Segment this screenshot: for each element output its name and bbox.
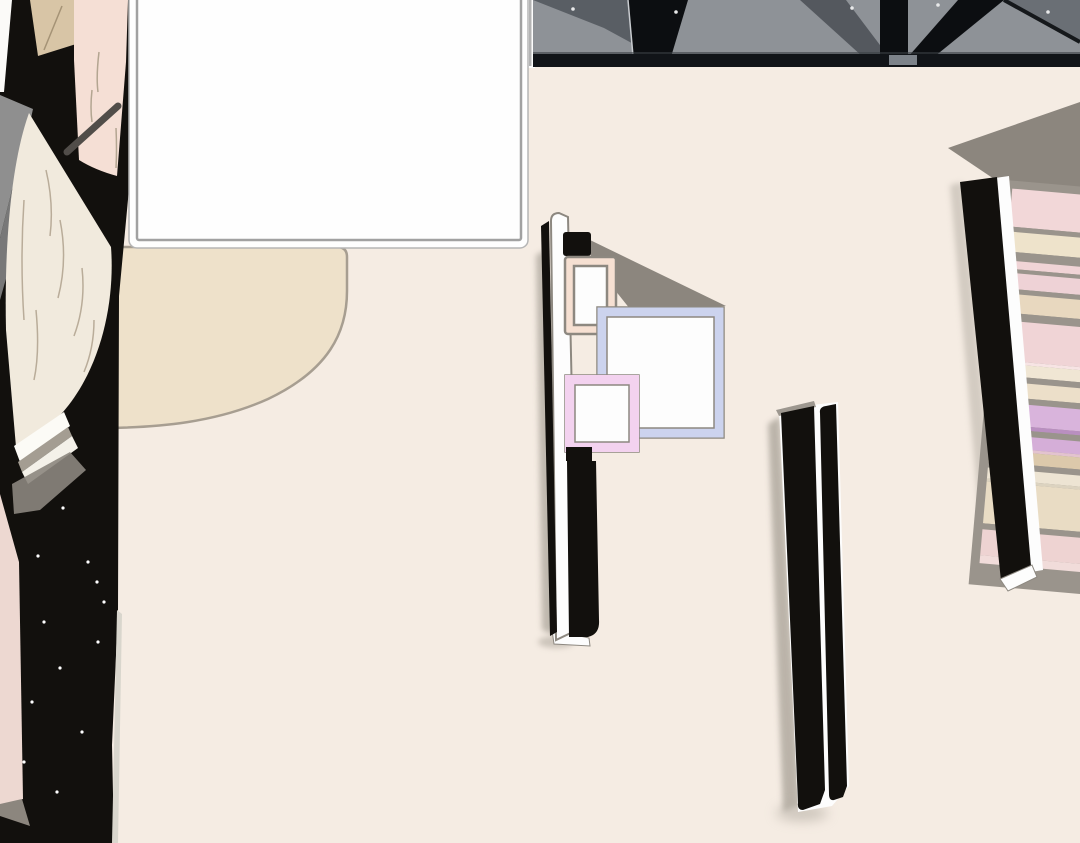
wall-black-block-bottom — [566, 447, 592, 461]
sparkle-dot — [102, 600, 105, 603]
sparkle-dot — [36, 554, 39, 557]
pink-frame-outer — [565, 375, 639, 452]
ceiling-band-gap — [889, 55, 917, 65]
ceiling-dot — [674, 10, 678, 14]
wall-black-block-top — [563, 232, 591, 256]
sparkle-dot — [61, 506, 64, 509]
sparkle-dot — [22, 760, 25, 763]
ceiling-dot — [936, 3, 940, 7]
sparkle-dot — [95, 580, 98, 583]
wall-black-bar — [567, 461, 599, 637]
sparkle-dot — [80, 730, 83, 733]
ceiling-beams — [521, 0, 1080, 68]
sparkle-dot — [86, 560, 89, 563]
ceiling-dot — [850, 6, 854, 10]
ceiling-left-line — [529, 0, 532, 66]
ceiling-band-highlight — [533, 52, 1080, 54]
ceiling-beam-mid — [880, 0, 908, 57]
sparkle-dot — [55, 790, 58, 793]
comic-panel-scene — [0, 0, 1080, 843]
ceiling-dot — [571, 7, 575, 11]
sparkle-dot — [96, 640, 99, 643]
ceiling-dot — [1046, 10, 1050, 14]
sparkle-dot — [30, 700, 33, 703]
scene-canvas — [0, 0, 1080, 843]
book-page-stack — [0, 0, 130, 843]
speech-panel-outer — [129, 0, 528, 248]
sparkle-dot — [42, 620, 45, 623]
sparkle-dot — [58, 666, 61, 669]
ceiling-bottom-band — [533, 54, 1080, 67]
blank-speech-panel — [129, 0, 528, 248]
